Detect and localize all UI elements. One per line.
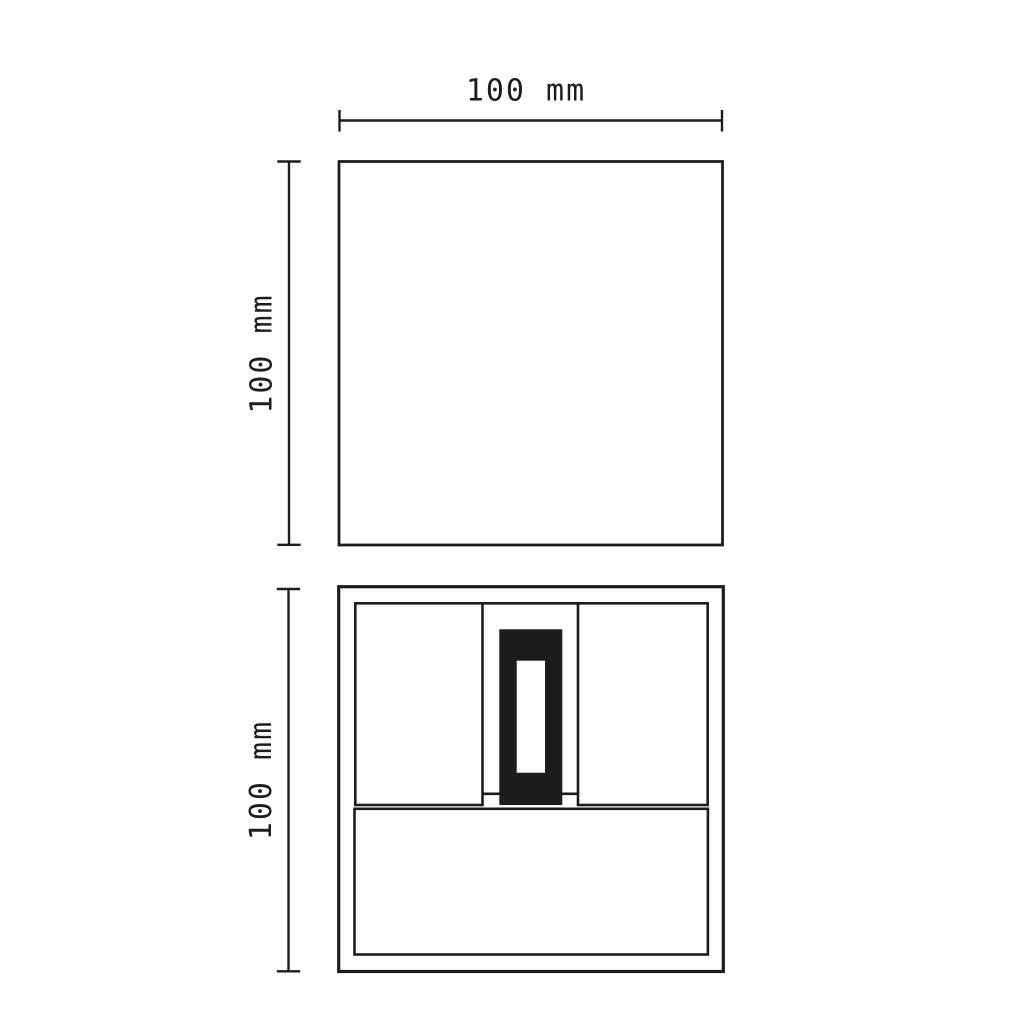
panel-right bbox=[578, 603, 708, 805]
technical-drawing-page: 100 mm 100 mm bbox=[0, 0, 1024, 1024]
dimension-label: 100 mm bbox=[244, 720, 279, 840]
panel-bottom bbox=[355, 809, 708, 955]
bottom-view bbox=[339, 587, 724, 972]
width-dimension: 100 mm bbox=[340, 74, 723, 132]
dimension-label: 100 mm bbox=[245, 293, 280, 413]
dimension-drawing: 100 mm 100 mm bbox=[0, 0, 1024, 1024]
bottom-height-dimension: 100 mm bbox=[244, 589, 300, 971]
top-view bbox=[339, 162, 723, 546]
panel-left bbox=[355, 603, 482, 805]
top-view-outline bbox=[339, 162, 723, 546]
top-height-dimension: 100 mm bbox=[245, 162, 301, 545]
led-slot-window bbox=[517, 661, 545, 773]
dimension-label: 100 mm bbox=[466, 74, 586, 109]
